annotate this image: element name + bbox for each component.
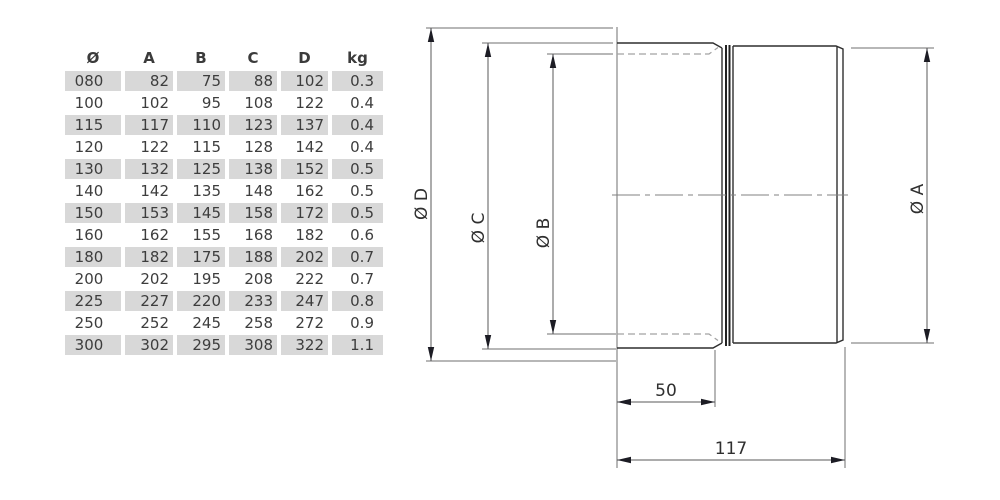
dim-label-c: Ø C: [469, 213, 489, 244]
dim-label-d: Ø D: [412, 188, 432, 220]
page: ØABCDkg 0808275881020.3100102951081220.4…: [0, 0, 1000, 500]
hidden-lines: [617, 48, 718, 341]
technical-drawing: Ø D Ø C Ø B Ø A 50 117: [0, 0, 1000, 500]
bead-lines: [726, 45, 730, 346]
arrowheads: [428, 28, 930, 463]
dim-label-b: Ø B: [534, 218, 554, 248]
dimension-lines: [431, 28, 927, 460]
dim-label-117: 117: [715, 439, 747, 459]
dim-label-50: 50: [655, 381, 677, 401]
dim-label-a: Ø A: [908, 183, 928, 214]
